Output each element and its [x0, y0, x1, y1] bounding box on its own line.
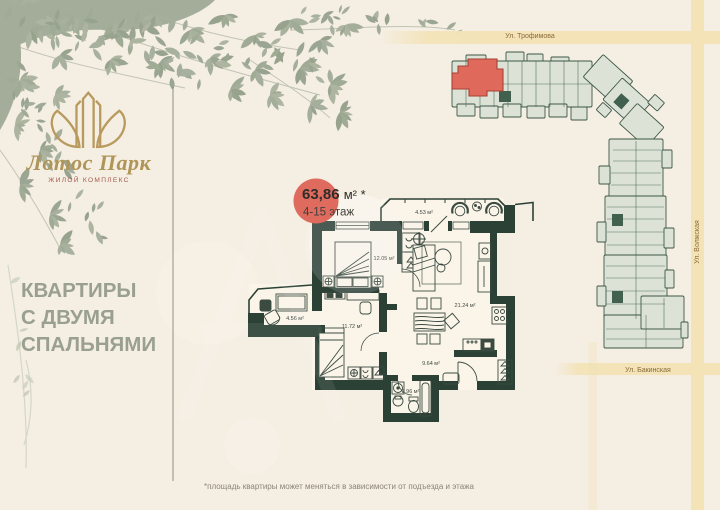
svg-text:СПАЛЬНЯМИ: СПАЛЬНЯМИ [21, 333, 156, 356]
svg-text:*площадь квартиры может менять: *площадь квартиры может меняться в завис… [204, 482, 474, 491]
svg-text:4.53 м²: 4.53 м² [415, 210, 433, 216]
svg-text:ЖИЛОЙ КОМПЛЕКС: ЖИЛОЙ КОМПЛЕКС [48, 175, 129, 184]
svg-text:21.24 м²: 21.24 м² [455, 303, 476, 309]
svg-text:КВАРТИРЫ: КВАРТИРЫ [21, 279, 137, 302]
svg-text:4-15 этаж: 4-15 этаж [303, 207, 354, 219]
svg-text:Ул. Трофимова: Ул. Трофимова [505, 33, 555, 40]
svg-text:С ДВУМЯ: С ДВУМЯ [21, 306, 115, 329]
svg-text:3.96 м²: 3.96 м² [402, 389, 420, 395]
svg-text:Ул. Волжская: Ул. Волжская [694, 220, 701, 264]
svg-text:Лотос Парк: Лотос Парк [26, 150, 152, 175]
svg-text:11.72 м²: 11.72 м² [342, 324, 363, 330]
svg-text:9.64 м²: 9.64 м² [422, 361, 440, 367]
svg-text:Ул. Бакинская: Ул. Бакинская [625, 367, 671, 374]
svg-text:63,86 м² *: 63,86 м² * [302, 186, 366, 203]
